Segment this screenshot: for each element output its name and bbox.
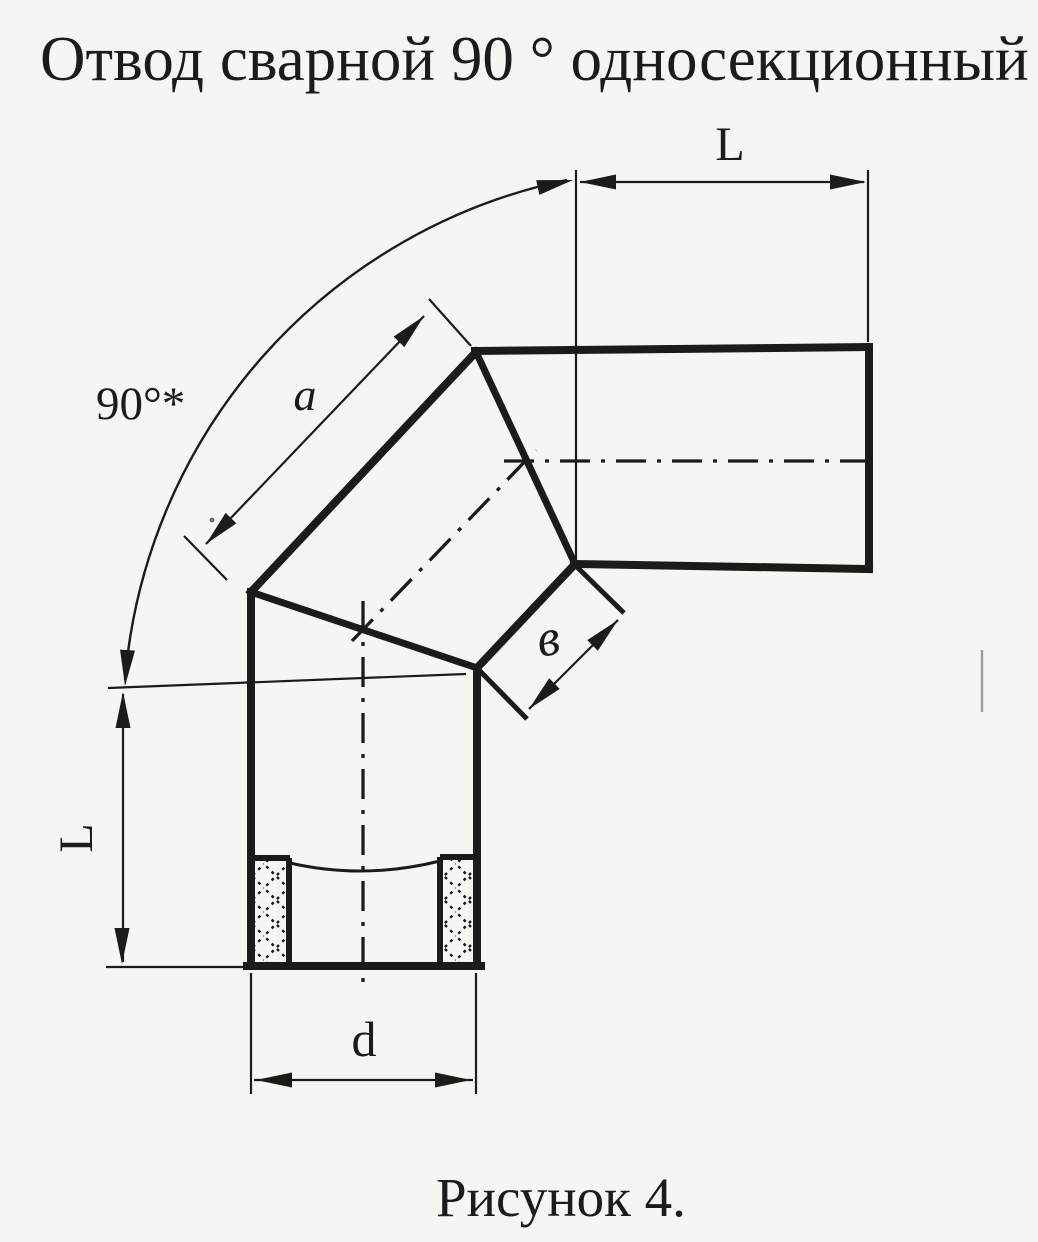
dimension-line-a bbox=[206, 316, 424, 544]
extension-stub-b-upper bbox=[576, 566, 624, 613]
label-diameter-d: d bbox=[352, 1011, 377, 1067]
hatch-left-wall bbox=[254, 861, 287, 963]
figure-caption: Рисунок 4. bbox=[436, 1166, 686, 1229]
pipe-wall-horizontal-bottom bbox=[574, 564, 869, 569]
arrowhead bbox=[580, 175, 616, 190]
arrowhead bbox=[256, 1073, 292, 1088]
socket-bore-break-line bbox=[290, 861, 440, 871]
extension-tick-a-lower bbox=[184, 536, 227, 580]
label-angle-90: 90°* bbox=[96, 378, 185, 430]
arrowhead bbox=[115, 928, 130, 964]
label-section-a: a bbox=[294, 369, 317, 420]
elbow-technical-drawing: L 90°* a в L d bbox=[0, 0, 1038, 1242]
angle-arc-90 bbox=[125, 180, 567, 680]
section-wall-upper-left bbox=[251, 352, 476, 592]
arrowhead bbox=[830, 175, 866, 190]
extension-stub-b-lower bbox=[478, 669, 527, 719]
arrowhead bbox=[116, 692, 131, 728]
centerline-middle-section bbox=[352, 450, 536, 641]
extension-line-left-top bbox=[108, 674, 466, 688]
pipe-wall-horizontal-top bbox=[475, 347, 869, 351]
arrowhead bbox=[118, 650, 135, 687]
hatch-right-wall bbox=[443, 860, 475, 963]
scan-artifact-dot bbox=[210, 518, 215, 523]
arrowhead bbox=[524, 678, 560, 714]
label-width-b: в bbox=[532, 609, 564, 669]
label-length-left-L: L bbox=[50, 823, 103, 852]
arrowhead bbox=[587, 615, 623, 651]
arrowhead bbox=[435, 1073, 471, 1088]
extension-tick-a-upper bbox=[429, 299, 471, 346]
weld-seam-upper bbox=[476, 352, 575, 564]
arrowhead bbox=[536, 173, 574, 195]
label-length-top-L: L bbox=[715, 118, 744, 171]
